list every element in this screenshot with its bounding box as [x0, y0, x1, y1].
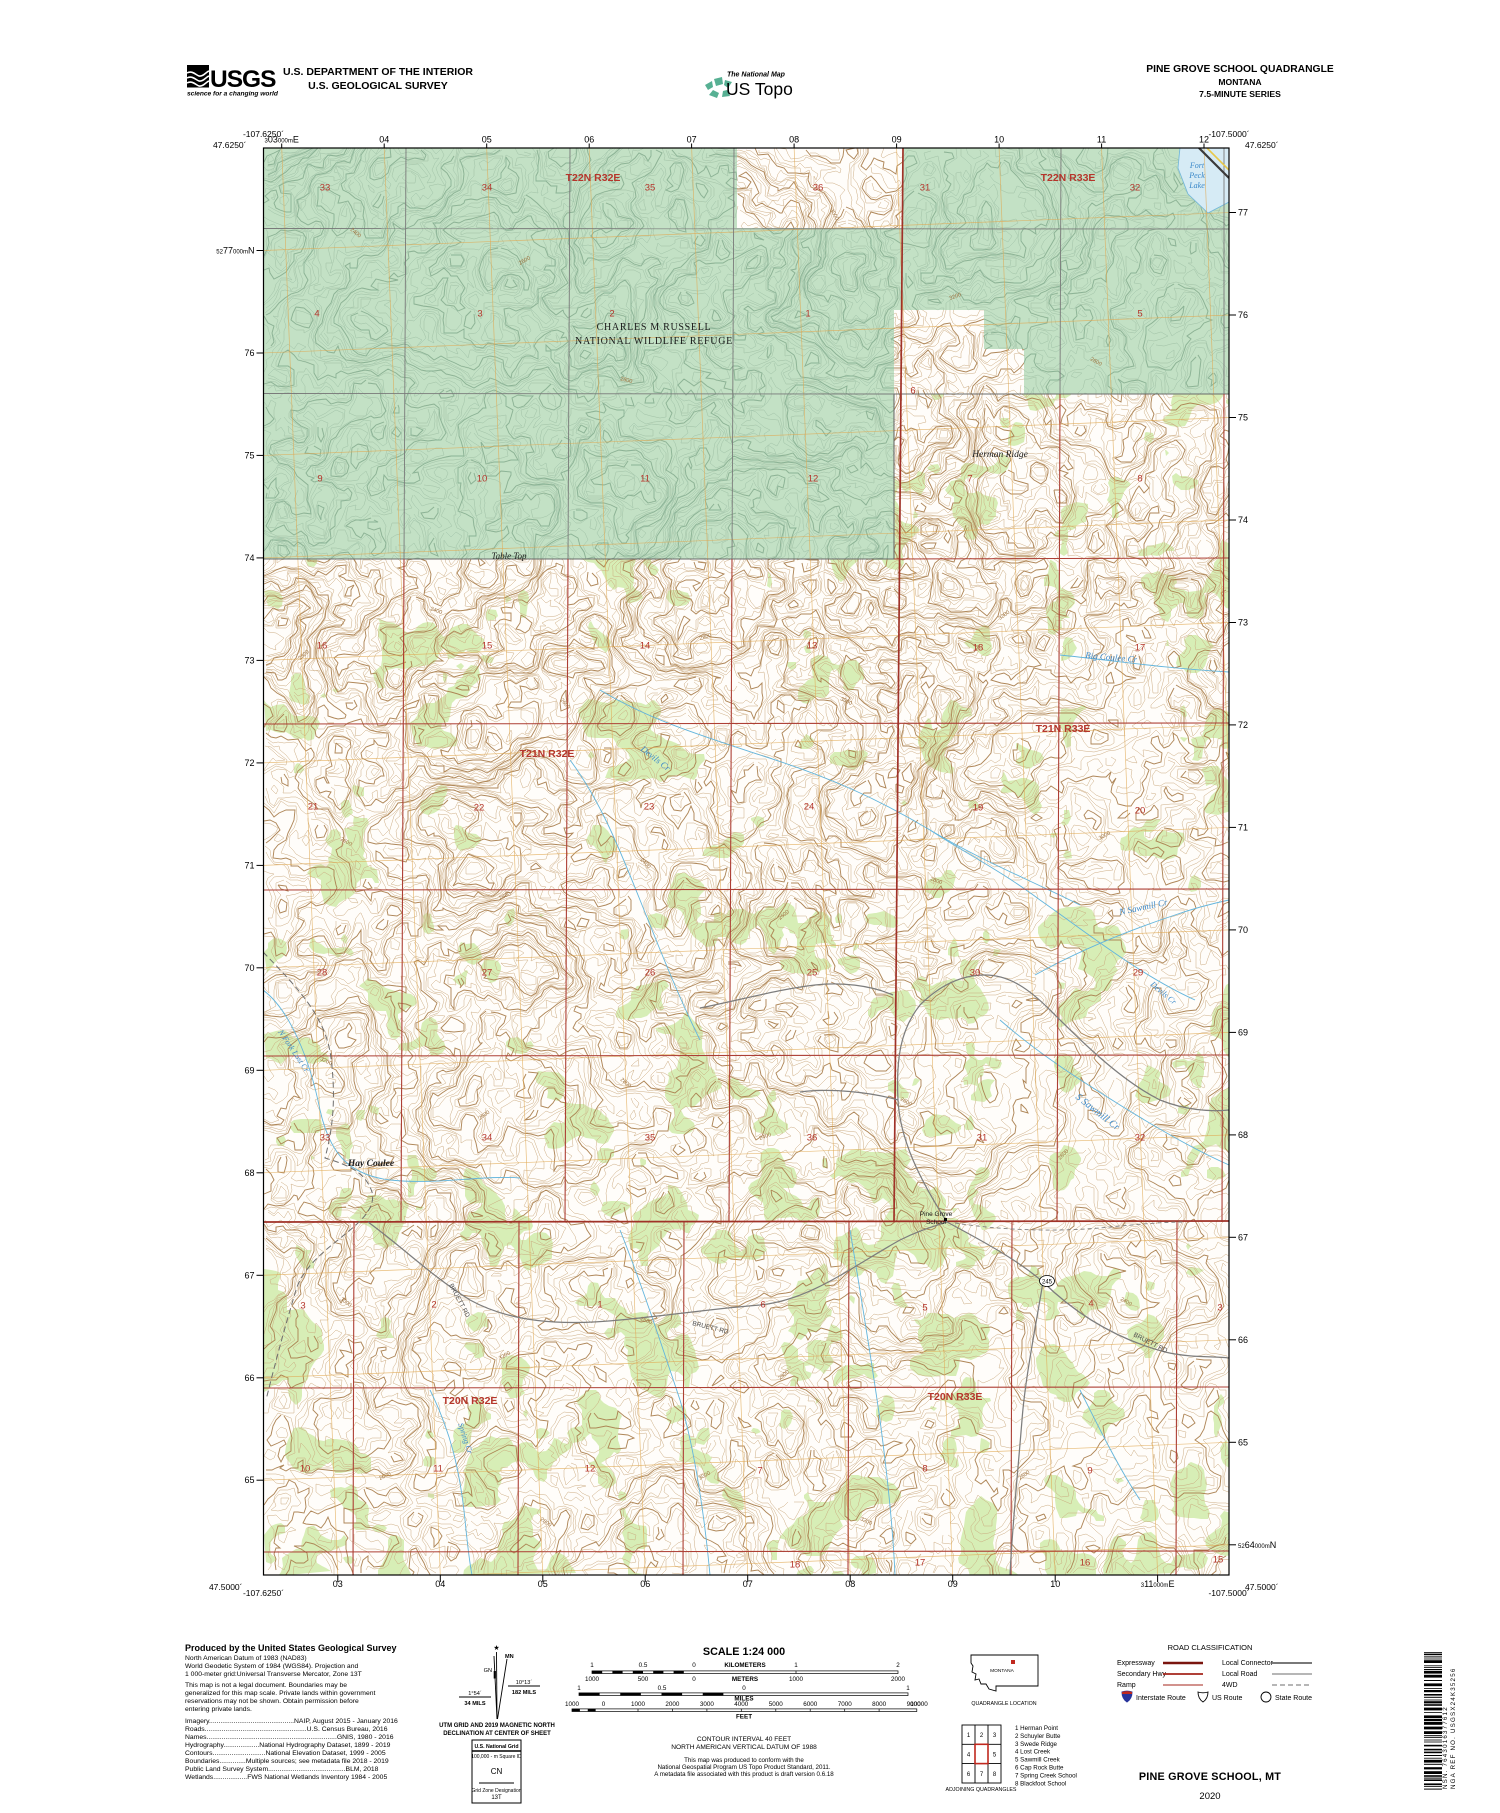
- svg-text:65: 65: [244, 1475, 254, 1485]
- svg-text:28: 28: [317, 968, 328, 979]
- svg-text:GN: GN: [484, 1668, 492, 1674]
- svg-text:77: 77: [1238, 208, 1248, 218]
- svg-text:8: 8: [1137, 474, 1142, 485]
- svg-text:State Route: State Route: [1275, 1695, 1312, 1702]
- svg-text:The National Map: The National Map: [727, 72, 786, 79]
- svg-text:19: 19: [973, 803, 984, 814]
- svg-text:NSN. 7643016377612: NSN. 7643016377612: [1442, 1706, 1449, 1789]
- svg-text:-107.5000´: -107.5000´: [1208, 1588, 1249, 1598]
- svg-text:U.S. National Grid: U.S. National Grid: [474, 1744, 518, 1750]
- svg-text:73: 73: [244, 655, 254, 665]
- svg-text:24: 24: [804, 802, 815, 813]
- svg-text:10: 10: [1050, 1579, 1060, 1589]
- svg-text:66: 66: [1238, 1335, 1248, 1345]
- svg-text:21: 21: [308, 802, 319, 813]
- svg-text:7.5-MINUTE SERIES: 7.5-MINUTE SERIES: [1199, 89, 1281, 99]
- svg-text:KILOMETERS: KILOMETERS: [724, 1662, 765, 1669]
- svg-text:5000: 5000: [769, 1701, 784, 1708]
- svg-text:2: 2: [896, 1662, 900, 1669]
- svg-text:Ramp: Ramp: [1117, 1682, 1136, 1689]
- svg-text:0: 0: [602, 1701, 606, 1708]
- svg-text:1: 1: [590, 1662, 594, 1669]
- svg-text:05: 05: [482, 135, 492, 145]
- svg-text:35: 35: [645, 1133, 656, 1144]
- svg-text:6: 6: [760, 1300, 765, 1311]
- svg-text:2 Schuyler Butte: 2 Schuyler Butte: [1015, 1733, 1061, 1740]
- svg-text:33: 33: [320, 1133, 331, 1144]
- svg-text:3: 3: [477, 309, 482, 320]
- svg-text:PINE GROVE SCHOOL, MT: PINE GROVE SCHOOL, MT: [1139, 1771, 1281, 1783]
- svg-text:26: 26: [645, 968, 656, 979]
- svg-text:4: 4: [314, 309, 319, 320]
- svg-text:NORTH AMERICAN VERTICAL DATUM: NORTH AMERICAN VERTICAL DATUM OF 1988: [671, 1744, 817, 1751]
- svg-text:entering private lands.: entering private lands.: [185, 1706, 252, 1713]
- svg-text:34 MILS: 34 MILS: [464, 1701, 485, 1707]
- svg-text:ADJOINING QUADRANGLES: ADJOINING QUADRANGLES: [946, 1787, 1017, 1793]
- svg-text:70: 70: [244, 963, 254, 973]
- svg-text:SCALE 1:24 000: SCALE 1:24 000: [703, 1646, 785, 1658]
- svg-text:★: ★: [493, 1644, 499, 1652]
- svg-text:71: 71: [244, 860, 254, 870]
- svg-text:7 Spring Creek School: 7 Spring Creek School: [1015, 1772, 1077, 1779]
- svg-text:Produced by the United States: Produced by the United States Geological…: [185, 1643, 397, 1653]
- svg-text:32: 32: [1130, 183, 1141, 194]
- svg-text:14: 14: [640, 641, 651, 652]
- svg-text:1000: 1000: [789, 1676, 804, 1683]
- svg-text:T22N R32E: T22N R32E: [566, 172, 621, 184]
- svg-text:04: 04: [435, 1579, 445, 1589]
- svg-text:School: School: [926, 1219, 946, 1226]
- svg-text:0.5: 0.5: [658, 1685, 667, 1692]
- svg-text:generalized for this map scale: generalized for this map scale. Private …: [185, 1690, 376, 1697]
- svg-text:20: 20: [1135, 806, 1146, 817]
- svg-text:ROAD CLASSIFICATION: ROAD CLASSIFICATION: [1168, 1643, 1253, 1652]
- svg-text:Table Top: Table Top: [491, 551, 527, 561]
- svg-text:6: 6: [910, 386, 915, 397]
- svg-text:182 MILS: 182 MILS: [512, 1690, 537, 1696]
- svg-text:67: 67: [244, 1270, 254, 1280]
- svg-text:34: 34: [482, 1133, 493, 1144]
- svg-text:Hydrography...................: Hydrography...................National H…: [185, 1742, 391, 1749]
- svg-text:76: 76: [244, 348, 254, 358]
- svg-text:18: 18: [973, 643, 984, 654]
- svg-text:73: 73: [1238, 618, 1248, 628]
- svg-text:US Topo: US Topo: [726, 79, 793, 99]
- svg-text:0.5: 0.5: [639, 1662, 648, 1669]
- svg-text:30: 30: [970, 968, 981, 979]
- svg-text:66: 66: [244, 1373, 254, 1383]
- svg-text:6000: 6000: [803, 1701, 818, 1708]
- svg-text:36: 36: [807, 1133, 818, 1144]
- svg-text:08: 08: [845, 1579, 855, 1589]
- svg-text:09: 09: [948, 1579, 958, 1589]
- svg-text:47.6250´: 47.6250´: [1245, 140, 1279, 150]
- svg-text:65: 65: [1238, 1437, 1248, 1447]
- svg-text:UTM GRID AND 2019 MAGNETIC NOR: UTM GRID AND 2019 MAGNETIC NORTH: [439, 1723, 555, 1729]
- svg-text:08: 08: [789, 135, 799, 145]
- svg-text:47.5000´: 47.5000´: [209, 1582, 243, 1592]
- svg-text:Peck: Peck: [1188, 171, 1205, 180]
- svg-text:1 000-meter grid:Universal Tra: 1 000-meter grid:Universal Transverse Me…: [185, 1671, 362, 1678]
- svg-text:31: 31: [977, 1133, 988, 1144]
- svg-text:This map is not a legal docume: This map is not a legal document. Bounda…: [185, 1682, 347, 1689]
- svg-text:-107.5000´: -107.5000´: [1208, 129, 1249, 139]
- svg-text:74: 74: [1238, 515, 1248, 525]
- svg-text:10: 10: [994, 135, 1004, 145]
- svg-text:0: 0: [692, 1676, 696, 1683]
- svg-text:4: 4: [1088, 1299, 1093, 1310]
- svg-text:11: 11: [640, 474, 650, 485]
- svg-text:Pine Grove: Pine Grove: [920, 1211, 953, 1218]
- svg-text:1: 1: [597, 1300, 602, 1311]
- svg-text:Grid Zone Designation: Grid Zone Designation: [471, 1788, 521, 1794]
- svg-text:06: 06: [640, 1579, 650, 1589]
- svg-text:3000: 3000: [700, 1701, 715, 1708]
- svg-text:17: 17: [1135, 643, 1146, 654]
- svg-text:72: 72: [244, 758, 254, 768]
- svg-text:National Geospatial Program US: National Geospatial Program US Topo Prod…: [657, 1764, 830, 1771]
- svg-text:18: 18: [790, 1560, 801, 1571]
- svg-text:North American Datum of 1983 (: North American Datum of 1983 (NAD83): [185, 1655, 307, 1662]
- svg-text:reservations may not be shown.: reservations may not be shown. Obtain pe…: [185, 1698, 359, 1705]
- svg-text:06: 06: [584, 135, 594, 145]
- svg-text:2000: 2000: [665, 1701, 680, 1708]
- svg-text:-107.6250´: -107.6250´: [243, 1588, 284, 1598]
- svg-text:Hay Coulee: Hay Coulee: [347, 1159, 395, 1169]
- svg-text:METERS: METERS: [732, 1676, 758, 1683]
- svg-text:1: 1: [906, 1685, 910, 1692]
- svg-text:74: 74: [244, 553, 254, 563]
- svg-text:71: 71: [1238, 822, 1248, 832]
- svg-text:36: 36: [813, 183, 824, 194]
- svg-text:T22N R33E: T22N R33E: [1041, 172, 1096, 184]
- svg-text:Lake: Lake: [1188, 181, 1205, 190]
- svg-text:science for a changing world: science for a changing world: [187, 91, 279, 98]
- svg-text:U.S. DEPARTMENT OF THE INTERIO: U.S. DEPARTMENT OF THE INTERIOR: [283, 66, 473, 78]
- svg-text:MN: MN: [505, 1654, 514, 1660]
- svg-text:100,000 - m Square ID: 100,000 - m Square ID: [471, 1754, 522, 1760]
- svg-text:3 Swede Ridge: 3 Swede Ridge: [1015, 1741, 1058, 1748]
- svg-text:1: 1: [805, 309, 810, 320]
- svg-text:CHARLES M RUSSELL: CHARLES M RUSSELL: [597, 322, 712, 333]
- svg-text:22: 22: [474, 803, 485, 814]
- svg-text:QUADRANGLE LOCATION: QUADRANGLE LOCATION: [971, 1701, 1036, 1707]
- svg-text:12: 12: [585, 1464, 596, 1475]
- svg-text:7000: 7000: [838, 1701, 853, 1708]
- svg-text:Herman Ridge: Herman Ridge: [971, 450, 1028, 460]
- svg-text:72: 72: [1238, 720, 1248, 730]
- svg-text:07: 07: [743, 1579, 753, 1589]
- svg-text:33: 33: [320, 183, 331, 194]
- svg-text:32: 32: [1135, 1133, 1146, 1144]
- svg-text:34: 34: [482, 183, 493, 194]
- svg-text:11: 11: [1097, 135, 1106, 145]
- svg-text:13T: 13T: [491, 1795, 502, 1801]
- svg-text:76: 76: [1238, 310, 1248, 320]
- svg-text:Imagery.......................: Imagery.................................…: [185, 1718, 398, 1725]
- svg-text:FEET: FEET: [736, 1714, 752, 1721]
- svg-text:Roads.........................: Roads...................................…: [185, 1726, 388, 1733]
- svg-text:68: 68: [1238, 1130, 1248, 1140]
- svg-text:4WD: 4WD: [1222, 1682, 1238, 1689]
- svg-text:05: 05: [538, 1579, 548, 1589]
- svg-text:2000: 2000: [891, 1676, 906, 1683]
- svg-text:Boundaries..............Multip: Boundaries..............Multiple sources…: [185, 1758, 389, 1765]
- svg-text:12: 12: [808, 474, 819, 485]
- svg-text:8000: 8000: [872, 1701, 887, 1708]
- svg-text:13: 13: [807, 641, 818, 652]
- svg-text:DECLINATION AT CENTER OF SHEET: DECLINATION AT CENTER OF SHEET: [443, 1731, 551, 1737]
- svg-text:Secondary Hwy: Secondary Hwy: [1117, 1671, 1167, 1678]
- svg-text:-107.6250´: -107.6250´: [243, 129, 284, 139]
- svg-text:Local Connector: Local Connector: [1222, 1660, 1274, 1667]
- svg-text:6 Cap Rock Butte: 6 Cap Rock Butte: [1015, 1765, 1064, 1772]
- svg-text:Interstate Route: Interstate Route: [1136, 1695, 1186, 1702]
- svg-text:10000: 10000: [910, 1701, 928, 1708]
- svg-text:15: 15: [482, 641, 493, 652]
- svg-text:11: 11: [433, 1464, 443, 1475]
- svg-text:NATIONAL WILDLIFE REFUGE: NATIONAL WILDLIFE REFUGE: [575, 336, 733, 347]
- svg-text:10°13´: 10°13´: [516, 1680, 533, 1686]
- svg-text:0: 0: [742, 1685, 746, 1692]
- svg-text:15: 15: [1213, 1555, 1224, 1566]
- svg-text:NGA REF NO. USGSX24K35256: NGA REF NO. USGSX24K35256: [1450, 1668, 1457, 1789]
- svg-text:07: 07: [687, 135, 697, 145]
- svg-text:Wetlands..................FWS: Wetlands..................FWS National W…: [185, 1774, 387, 1781]
- svg-text:USGS: USGS: [210, 66, 276, 93]
- svg-text:68: 68: [244, 1168, 254, 1178]
- svg-text:47.5000´: 47.5000´: [1245, 1582, 1279, 1592]
- svg-text:CN: CN: [491, 1767, 503, 1776]
- svg-text:500: 500: [638, 1676, 649, 1683]
- svg-text:67: 67: [1238, 1232, 1248, 1242]
- svg-text:CONTOUR INTERVAL 40 FEET: CONTOUR INTERVAL 40 FEET: [697, 1736, 791, 1743]
- svg-text:T21N R33E: T21N R33E: [1036, 723, 1091, 735]
- svg-text:Local Road: Local Road: [1222, 1671, 1258, 1678]
- svg-text:5 Sawmill Creek: 5 Sawmill Creek: [1015, 1757, 1061, 1764]
- svg-text:Expressway: Expressway: [1117, 1660, 1155, 1667]
- svg-text:25: 25: [807, 968, 818, 979]
- svg-text:29: 29: [1133, 968, 1144, 979]
- svg-text:1000: 1000: [585, 1676, 600, 1683]
- svg-text:1: 1: [577, 1685, 581, 1692]
- svg-text:7: 7: [757, 1466, 762, 1477]
- svg-text:4000: 4000: [734, 1701, 749, 1708]
- svg-text:5: 5: [1137, 309, 1142, 320]
- svg-text:245: 245: [1042, 1280, 1053, 1286]
- svg-text:3: 3: [1217, 1303, 1222, 1314]
- svg-text:PINE GROVE SCHOOL QUADRANGLE: PINE GROVE SCHOOL QUADRANGLE: [1146, 64, 1334, 75]
- svg-text:1 Herman Point: 1 Herman Point: [1015, 1725, 1058, 1732]
- svg-text:27: 27: [482, 968, 493, 979]
- svg-text:World Geodetic System of 1984: World Geodetic System of 1984 (WGS84). P…: [185, 1663, 358, 1670]
- svg-text:T20N R33E: T20N R33E: [928, 1391, 983, 1403]
- svg-text:10: 10: [300, 1464, 311, 1475]
- svg-text:16: 16: [317, 641, 328, 652]
- svg-text:17: 17: [915, 1558, 926, 1569]
- svg-text:U.S. GEOLOGICAL SURVEY: U.S. GEOLOGICAL SURVEY: [308, 80, 448, 92]
- svg-text:47.6250´: 47.6250´: [213, 140, 247, 150]
- svg-text:Contours......................: Contours............................Nati…: [185, 1750, 386, 1757]
- svg-text:75: 75: [244, 450, 254, 460]
- svg-text:23: 23: [644, 802, 655, 813]
- svg-text:2: 2: [609, 309, 614, 320]
- svg-text:4 Lost Creek: 4 Lost Creek: [1015, 1749, 1051, 1756]
- svg-text:69: 69: [1238, 1027, 1248, 1037]
- svg-text:Public Land Survey System..: Public Land Survey System...............…: [185, 1766, 379, 1773]
- svg-text:69: 69: [244, 1065, 254, 1075]
- svg-text:0: 0: [692, 1662, 696, 1669]
- svg-text:This map was produced to confo: This map was produced to conform with th…: [684, 1757, 804, 1764]
- svg-text:3: 3: [300, 1301, 305, 1312]
- svg-text:35: 35: [645, 183, 656, 194]
- svg-text:T20N R32E: T20N R32E: [443, 1395, 498, 1407]
- svg-text:75: 75: [1238, 413, 1248, 423]
- svg-text:8 Blackfoot School: 8 Blackfoot School: [1015, 1780, 1066, 1787]
- svg-text:Fort: Fort: [1189, 161, 1205, 170]
- svg-text:1°54´: 1°54´: [468, 1691, 482, 1697]
- svg-text:70: 70: [1238, 925, 1248, 935]
- svg-text:1000: 1000: [631, 1701, 646, 1708]
- svg-text:A metadata file associated wit: A metadata file associated with this pro…: [654, 1771, 834, 1778]
- svg-text:2020: 2020: [1199, 1791, 1220, 1802]
- svg-text:MONTANA: MONTANA: [1218, 77, 1261, 87]
- svg-text:US Route: US Route: [1212, 1695, 1242, 1702]
- svg-text:7: 7: [967, 474, 972, 485]
- svg-text:5: 5: [922, 1303, 927, 1314]
- svg-text:T21N R32E: T21N R32E: [520, 748, 575, 760]
- svg-text:1: 1: [794, 1662, 798, 1669]
- svg-text:9: 9: [1087, 1466, 1092, 1477]
- svg-text:Names.........................: Names...................................…: [185, 1734, 394, 1741]
- svg-text:03: 03: [333, 1579, 343, 1589]
- svg-text:16: 16: [1080, 1558, 1091, 1569]
- svg-text:1000: 1000: [565, 1701, 580, 1708]
- svg-text:MONTANA: MONTANA: [990, 1668, 1014, 1674]
- svg-text:09: 09: [892, 135, 902, 145]
- svg-text:9: 9: [317, 474, 322, 485]
- svg-text:8: 8: [922, 1464, 927, 1475]
- svg-text:04: 04: [379, 135, 389, 145]
- svg-text:10: 10: [477, 474, 488, 485]
- svg-text:31: 31: [920, 183, 931, 194]
- svg-text:2: 2: [431, 1300, 436, 1311]
